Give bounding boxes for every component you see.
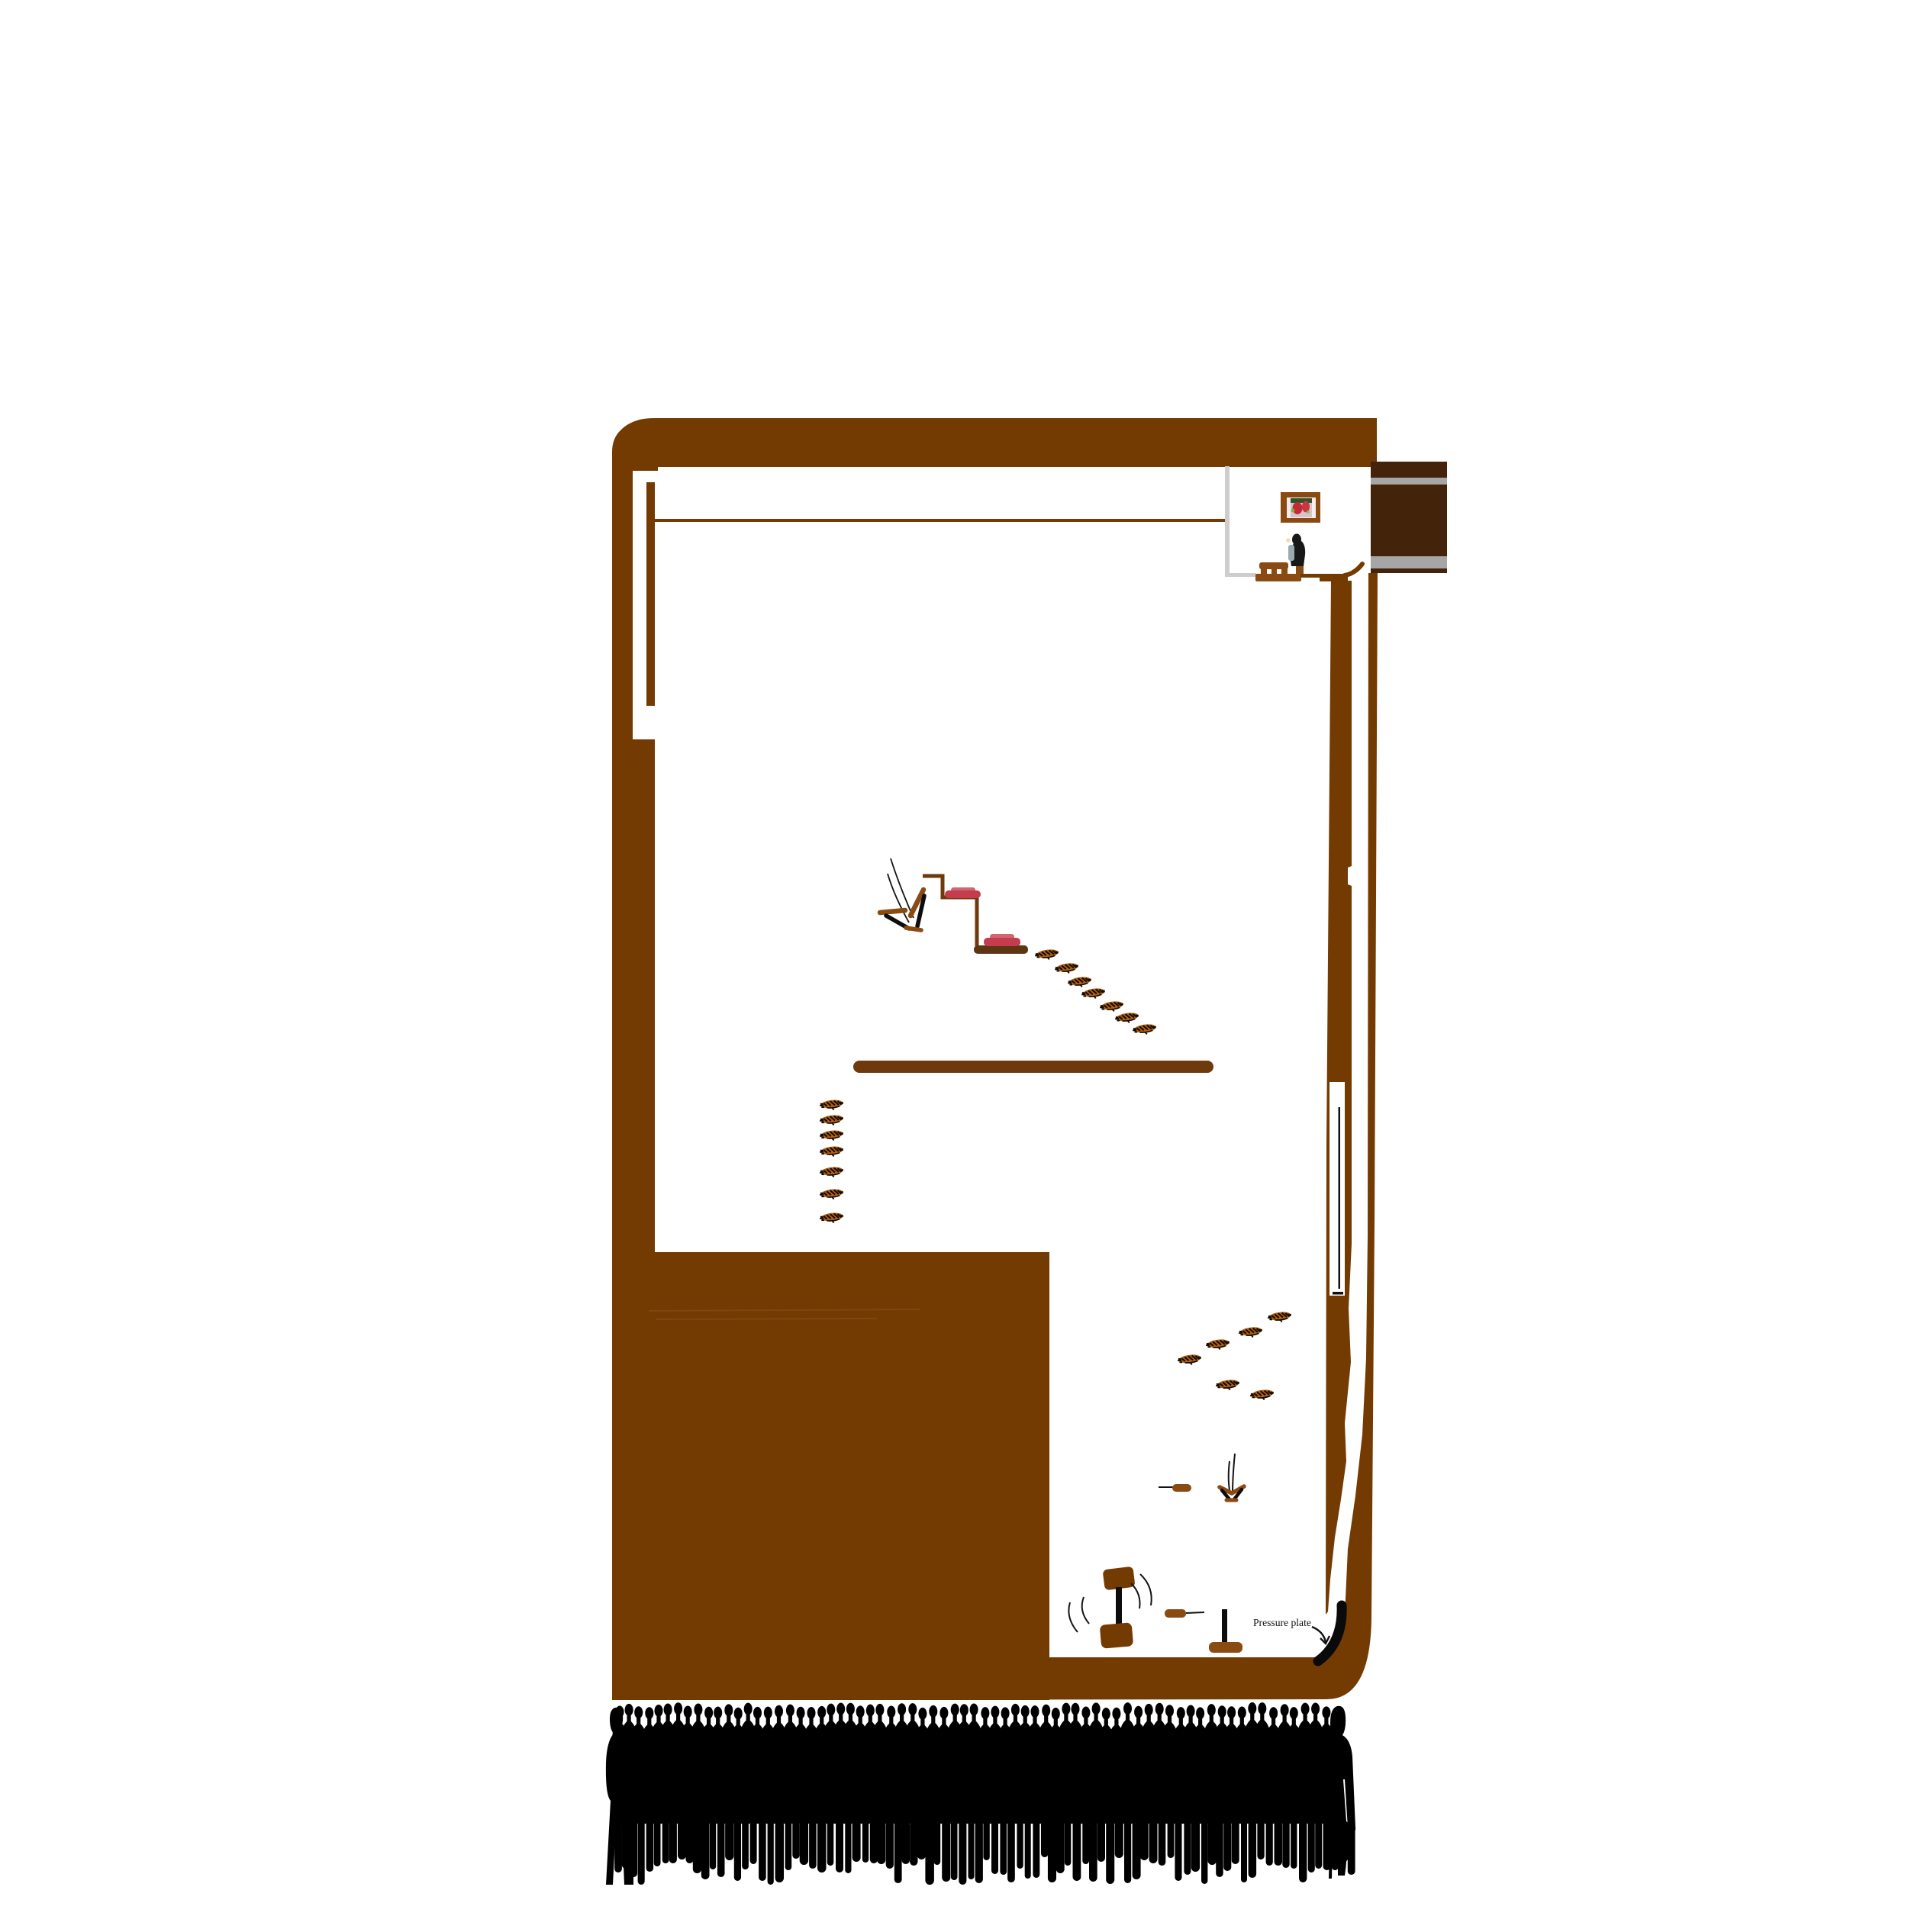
svg-text:Pressure plate: Pressure plate bbox=[1253, 1617, 1311, 1628]
